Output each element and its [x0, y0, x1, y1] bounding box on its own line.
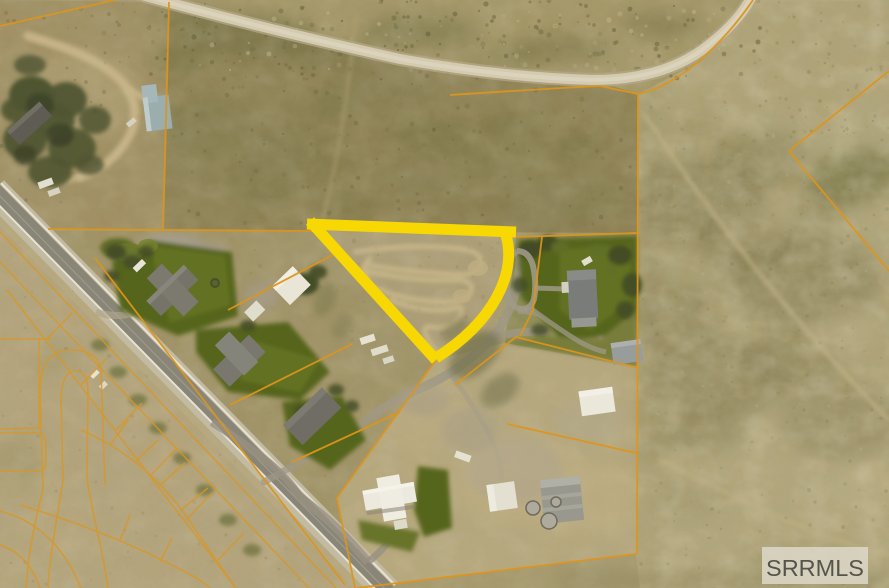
svg-text:SRRMLS: SRRMLS: [766, 555, 864, 581]
